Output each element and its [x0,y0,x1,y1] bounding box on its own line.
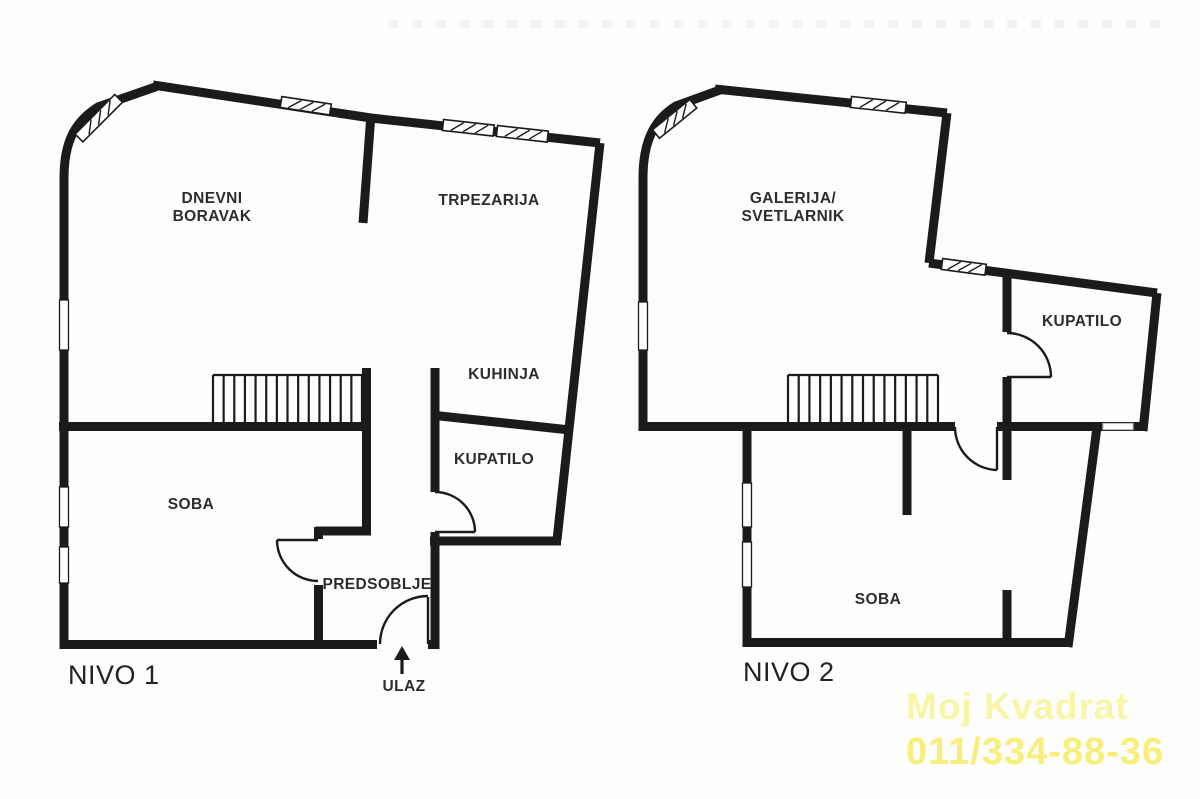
room-label-line: GALERIJA/ [750,190,836,207]
room-label-soba-n2: SOBA [855,591,901,609]
room-label-line: BORAVAK [173,208,252,225]
level-label-nivo-1: NIVO 1 [68,660,160,691]
room-label-predsoblje: PREDSOBLJE [322,576,431,594]
floor-plan-drawing [0,0,1200,799]
window [639,302,752,587]
door-kupatilo-n2 [1007,333,1051,377]
wall [643,90,720,431]
door-soba-predsoblje [277,540,318,581]
room-label-galerija-svetlarnik: GALERIJA/ SVETLARNIK [741,190,844,226]
room-label-line: SVETLARNIK [741,208,844,225]
room-label-dnevni-boravak: DNEVNI BORAVAK [173,190,252,226]
window [442,120,494,137]
room-label-trpezarija: TRPEZARIJA [438,192,539,210]
stairs-icon-nivo-1 [213,375,362,423]
door-entrance [380,596,428,644]
floor-plan-canvas: DNEVNI BORAVAK TRPEZARIJA KUHINJA KUPATI… [0,0,1200,799]
window [850,97,906,114]
entrance-label: ULAZ [383,678,426,696]
room-label-kuhinja: KUHINJA [468,366,540,384]
wall [363,114,371,223]
level-label-nivo-2: NIVO 2 [743,657,835,688]
wall [715,89,947,113]
wall [64,86,158,649]
window [941,259,986,276]
window [496,126,548,143]
watermark-brand: Moj Kvadrat [906,686,1129,728]
wall [1143,293,1157,431]
watermark-phone: 011/334-88-36 [906,731,1164,774]
dotted-artifact-row [388,20,1160,28]
wall [929,113,947,263]
nivo-1-door-openings [312,492,441,651]
room-label-soba-n1: SOBA [168,496,214,514]
wall [431,415,570,430]
room-label-kupatilo-n2: KUPATILO [1042,313,1122,331]
nivo-1-doors [277,492,475,644]
wall [1068,427,1097,647]
room-label-kupatilo-n1: KUPATILO [454,451,534,469]
door-soba-n2 [955,427,997,470]
stairs-icon-nivo-2 [788,375,938,423]
wall [557,143,600,540]
threshold [1103,424,1133,430]
room-label-line: DNEVNI [182,190,243,207]
floor-plan-nivo-2 [643,89,1157,647]
